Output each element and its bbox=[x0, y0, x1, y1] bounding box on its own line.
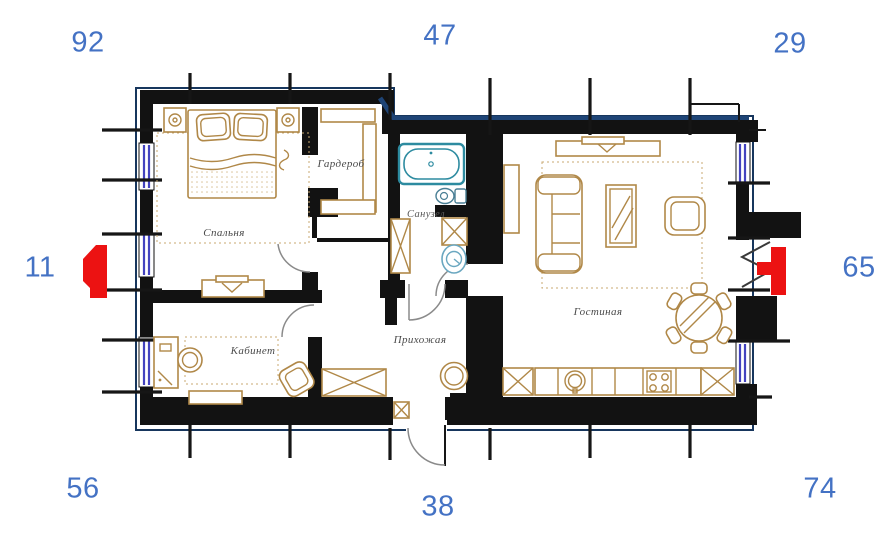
room-label-bedroom: Спальня bbox=[203, 227, 245, 239]
entrance-door bbox=[406, 420, 447, 466]
desk bbox=[154, 337, 178, 388]
number-label-right: 65 bbox=[842, 254, 875, 283]
kitchen-counter bbox=[503, 368, 734, 395]
living-window-bottom bbox=[736, 342, 750, 384]
desk-chair bbox=[178, 348, 202, 372]
room-bedroom: Спальня bbox=[157, 108, 309, 297]
room-study: Кабинет bbox=[154, 337, 316, 404]
room-living: Гостиная bbox=[503, 137, 734, 395]
cabinet-kitchen-left bbox=[503, 368, 533, 395]
armchair-living bbox=[665, 197, 705, 235]
pouf bbox=[441, 363, 468, 390]
nightstand-right bbox=[277, 108, 299, 132]
red-wall-marker-left bbox=[83, 245, 107, 298]
study-door-arc bbox=[282, 305, 314, 337]
bedroom-door-arc bbox=[278, 244, 310, 272]
room-label-hallway: Прихожая bbox=[393, 334, 447, 346]
double-bed bbox=[188, 110, 276, 198]
column-cabinet-small bbox=[394, 402, 409, 418]
nightstand-left bbox=[164, 108, 186, 132]
floor-plan-image: Спальня Гардероб bbox=[0, 0, 881, 538]
number-label-bottom-right: 74 bbox=[803, 475, 836, 504]
room-label-study: Кабинет bbox=[230, 345, 276, 357]
living-window-top bbox=[736, 142, 750, 184]
wall-lamp-icon bbox=[280, 150, 289, 170]
number-label-top-left: 92 bbox=[71, 29, 104, 58]
number-label-left: 11 bbox=[24, 254, 55, 283]
number-label-top-right: 29 bbox=[773, 30, 806, 59]
cabinet-hall-column bbox=[391, 219, 410, 273]
tv-stand-living bbox=[556, 137, 660, 156]
toilet bbox=[436, 189, 466, 204]
tv-stand-bedroom bbox=[202, 276, 264, 297]
room-label-bathroom: Санузел bbox=[407, 209, 445, 220]
wardrobe-cabinet-hall bbox=[322, 369, 386, 396]
radiator-study bbox=[189, 391, 242, 404]
clothes-rack-side bbox=[363, 124, 376, 212]
number-label-bottom-center: 38 bbox=[421, 493, 454, 522]
coffee-table bbox=[606, 185, 636, 247]
clothes-rack-bottom bbox=[321, 200, 375, 214]
room-label-living: Гостиная bbox=[573, 306, 623, 318]
study-window bbox=[139, 337, 154, 387]
cabinet-kitchen-right bbox=[701, 368, 734, 395]
red-wall-marker-right bbox=[757, 247, 786, 295]
bedroom-window-2 bbox=[139, 233, 154, 277]
dining-table bbox=[665, 283, 733, 353]
floor-plan-page: Спальня Гардероб bbox=[0, 0, 881, 538]
number-label-bottom-left: 56 bbox=[66, 475, 99, 504]
sofa bbox=[536, 175, 582, 273]
washing-machine bbox=[442, 245, 466, 273]
bathroom-door bbox=[409, 284, 445, 320]
clothes-rack-top bbox=[321, 109, 375, 122]
cabinet-bathroom bbox=[442, 218, 467, 245]
room-label-wardrobe: Гардероб bbox=[316, 158, 364, 170]
number-label-top-center: 47 bbox=[423, 22, 456, 51]
bedroom-window-1 bbox=[139, 143, 154, 190]
radiator-living bbox=[504, 165, 519, 233]
bathtub bbox=[399, 144, 464, 184]
